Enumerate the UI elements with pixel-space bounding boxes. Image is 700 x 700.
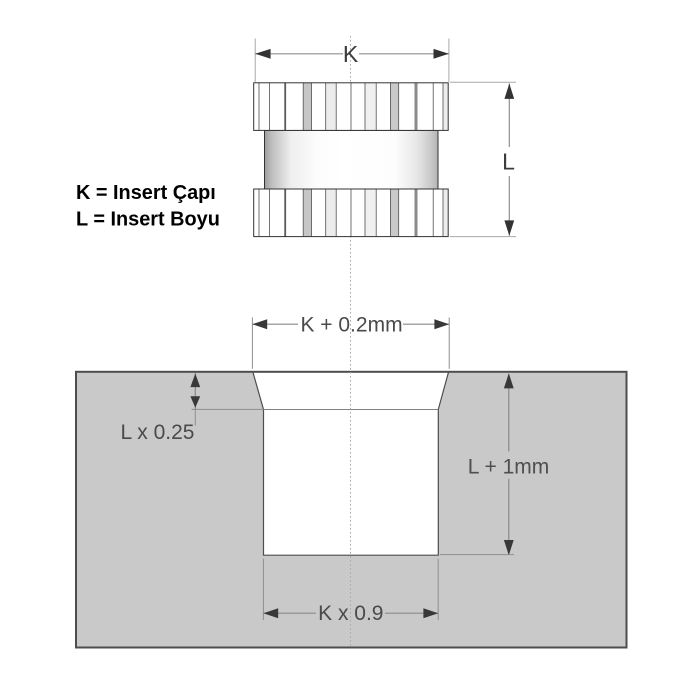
svg-text:K x 0.9: K x 0.9 xyxy=(318,602,383,625)
svg-text:K + 0.2mm: K + 0.2mm xyxy=(300,313,402,336)
svg-text:L = Insert Boyu: L = Insert Boyu xyxy=(76,209,220,231)
svg-text:K: K xyxy=(343,41,359,67)
svg-text:L + 1mm: L + 1mm xyxy=(468,455,550,478)
svg-text:L x 0.25: L x 0.25 xyxy=(121,421,195,444)
svg-text:L: L xyxy=(502,149,515,175)
svg-text:K = Insert Çapı: K = Insert Çapı xyxy=(76,182,216,204)
